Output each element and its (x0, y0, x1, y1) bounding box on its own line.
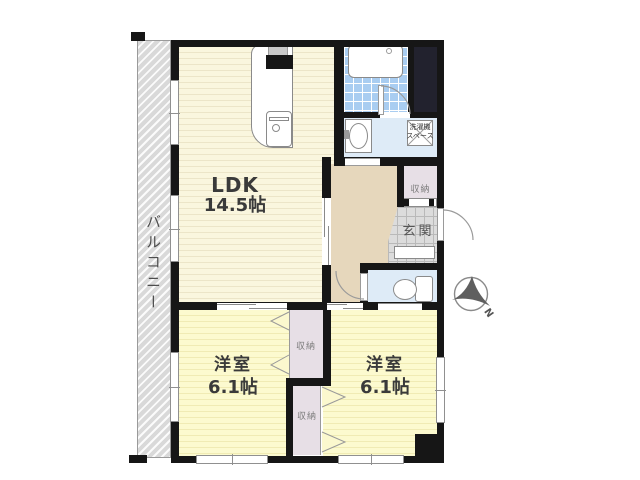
entrance-label: 玄関 (396, 220, 441, 239)
bedroom-left-label: 洋室 (183, 357, 283, 375)
closet-top-label: 収納 (289, 339, 323, 352)
front-door-arc (443, 210, 473, 240)
compass-n-label: N (481, 307, 495, 320)
ldk-size-label: 14.5帖 (175, 197, 295, 216)
balcony-label: バルコニー (146, 176, 164, 351)
plan-symbols: N (0, 0, 640, 480)
bedroom-left-size-label: 6.1帖 (183, 379, 283, 398)
floor-plan: N LDK 14.5帖 洋室 6.1帖 洋室 6.1帖 バルコニー 玄関 収納 … (0, 0, 640, 480)
bedroom-right-size-label: 6.1帖 (335, 379, 435, 398)
entrance-closet-label: 収納 (404, 182, 437, 195)
laundry-space-label-line2: スペース (404, 132, 436, 141)
laundry-space-label: 洗濯機 スペース (404, 123, 436, 141)
ldk-label: LDK (185, 175, 285, 196)
closet-bottom-door-chevron-2 (322, 432, 345, 452)
bedroom-right-label: 洋室 (335, 357, 435, 375)
toilet-door-arc (336, 271, 364, 299)
closet-bottom-label: 収納 (291, 409, 323, 422)
bath-door-arc (381, 86, 410, 114)
laundry-space-label-line1: 洗濯機 (404, 123, 436, 132)
closet-top-door-chevron-1 (271, 312, 289, 330)
